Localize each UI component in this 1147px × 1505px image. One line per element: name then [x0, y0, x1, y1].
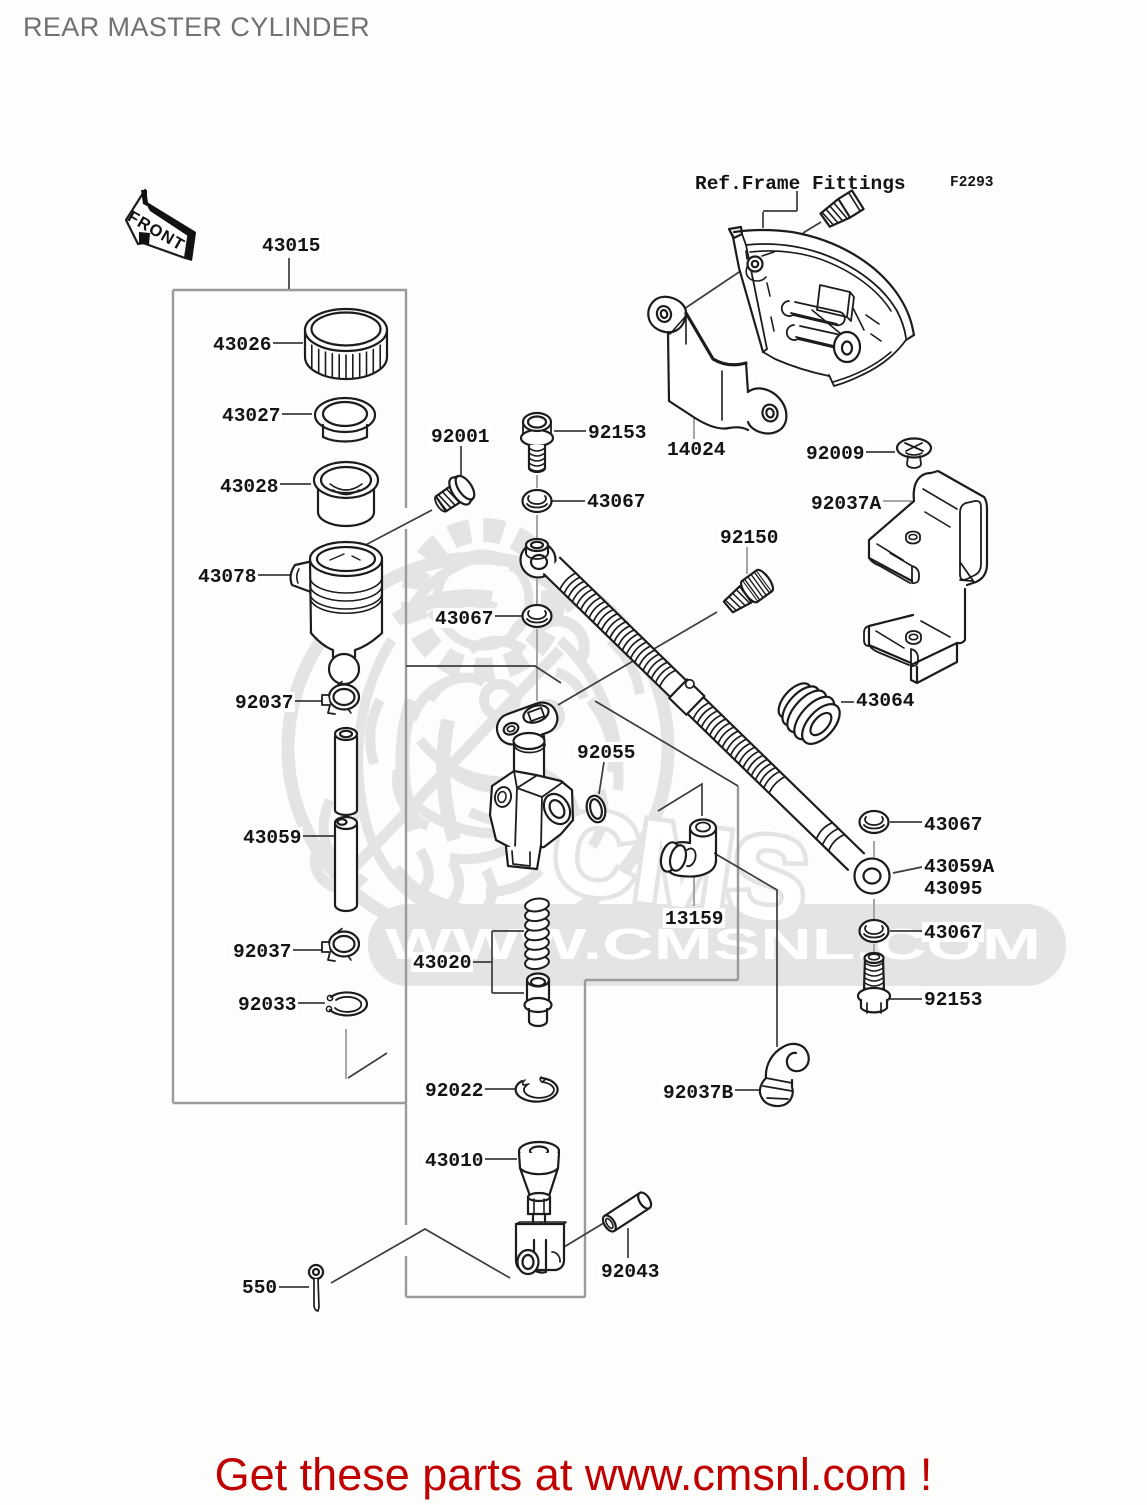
svg-text:43059A: 43059A [924, 856, 995, 878]
svg-text:43028: 43028 [220, 476, 279, 498]
svg-text:92043: 92043 [601, 1261, 660, 1283]
svg-text:43064: 43064 [856, 690, 915, 712]
svg-text:92150: 92150 [720, 527, 779, 549]
svg-text:43059: 43059 [243, 827, 302, 849]
svg-text:43067: 43067 [924, 814, 983, 836]
svg-text:43067: 43067 [924, 922, 983, 944]
svg-text:92153: 92153 [588, 422, 647, 444]
svg-text:92055: 92055 [577, 742, 636, 764]
svg-text:13159: 13159 [665, 908, 724, 930]
svg-text:F2293: F2293 [950, 175, 994, 191]
svg-text:43067: 43067 [435, 608, 494, 630]
svg-text:550: 550 [242, 1277, 277, 1299]
svg-text:43067: 43067 [587, 491, 646, 513]
svg-text:92037: 92037 [235, 692, 294, 714]
svg-text:92001: 92001 [431, 426, 490, 448]
svg-text:92009: 92009 [806, 443, 865, 465]
svg-text:43095: 43095 [924, 878, 983, 900]
svg-text:Ref.Frame Fittings: Ref.Frame Fittings [695, 173, 906, 195]
svg-text:92037: 92037 [233, 941, 292, 963]
svg-text:92033: 92033 [238, 994, 297, 1016]
svg-text:92153: 92153 [924, 989, 983, 1011]
svg-text:43015: 43015 [262, 235, 321, 257]
svg-text:43026: 43026 [213, 334, 272, 356]
svg-text:92037A: 92037A [811, 493, 882, 515]
svg-text:43010: 43010 [425, 1150, 484, 1172]
svg-text:92022: 92022 [425, 1080, 484, 1102]
svg-text:43027: 43027 [222, 405, 281, 427]
svg-text:14024: 14024 [667, 439, 726, 461]
svg-text:43078: 43078 [198, 566, 257, 588]
svg-text:43020: 43020 [413, 952, 472, 974]
svg-text:92037B: 92037B [663, 1082, 734, 1104]
